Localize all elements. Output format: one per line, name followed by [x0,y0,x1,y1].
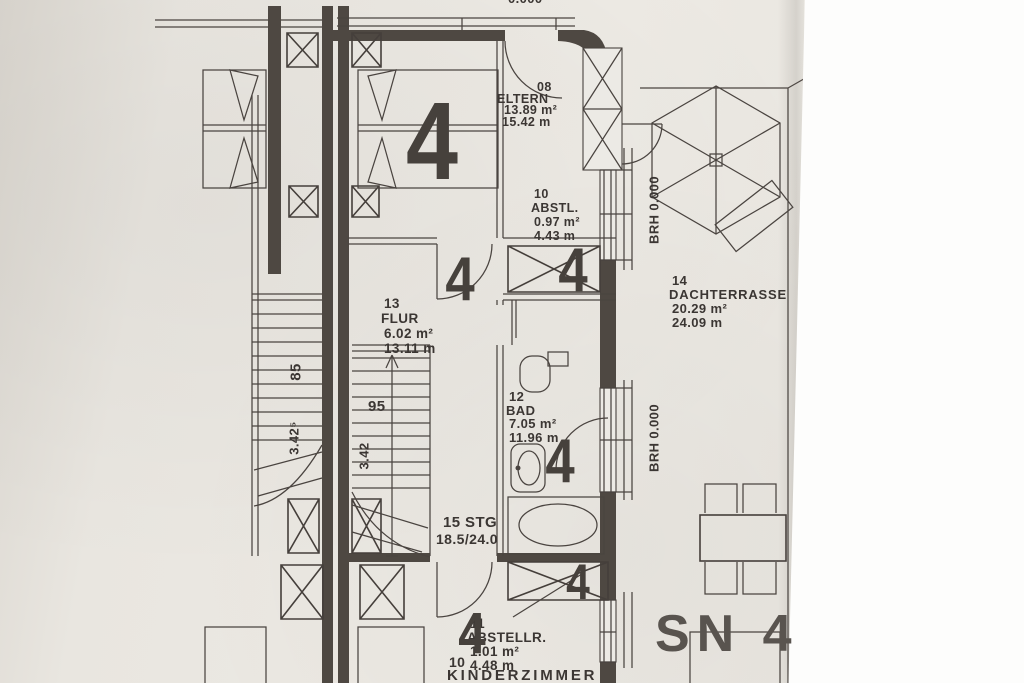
stairs-ratio: 18.5/24.0 [436,531,498,547]
room-area: 6.02 m² [381,326,436,341]
unit-number-kinderzimmer: 4 [458,605,485,663]
room-id: 14 [669,274,787,288]
adjacent-stairs-run-dim: 3.42⁵ [287,421,302,454]
unit-number-flur: 4 [445,249,474,311]
adjacent-unit-partial [155,20,322,683]
stairs-width-dim: 95 [368,398,386,415]
room-perimeter: 24.09 m [669,316,787,330]
brh-sill-height-label-lower: BRH 0.000 [647,404,662,472]
room-name: FLUR [381,311,436,326]
room-perimeter: 13.11 m [381,341,436,356]
room-label-flur: 13 FLUR 6.02 m² 13.11 m [381,296,436,356]
floor-plan-sheet: 0.000 08 ELTERN 13.89 m² 15.42 m 10 ABST… [0,0,1024,683]
unit-number-bad: 4 [545,431,574,493]
room-label-eltern: 08 ELTERN 13.89 m² 15.42 m [497,82,557,128]
top-edge-partial-text: 0.000 [508,0,543,6]
room-label-abstl: 10 ABSTL. 0.97 m² 4.43 m [531,187,580,243]
adjacent-stairs-width-dim: 85 [288,363,305,381]
room-area: 20.29 m² [669,302,787,316]
sheet-label: SN 4 [655,604,799,664]
party-wall [268,6,349,683]
room-name: BAD [506,404,559,418]
room-id: 12 [506,390,559,404]
room-label-dachterrasse: 14 DACHTERRASSE 20.29 m² 24.09 m [669,274,787,330]
room-area: 0.97 m² [531,215,580,229]
room-name: DACHTERRASSE [669,288,787,302]
room-id: 10 [531,187,580,201]
room-id: 13 [381,296,436,311]
unit-number-abstl: 4 [558,240,587,302]
unit-number-eltern: 4 [406,87,458,197]
unit-number-abstellr: 4 [566,557,590,607]
room-name: ABSTL. [531,201,580,215]
kinderzimmer-furniture [358,627,424,683]
stairs-run-dim: 3.42 [357,443,372,470]
stairs-label: 15 STG [443,514,497,531]
room-perimeter: 15.42 m [497,117,557,129]
brh-sill-height-label-upper: BRH 0.000 [647,176,662,244]
